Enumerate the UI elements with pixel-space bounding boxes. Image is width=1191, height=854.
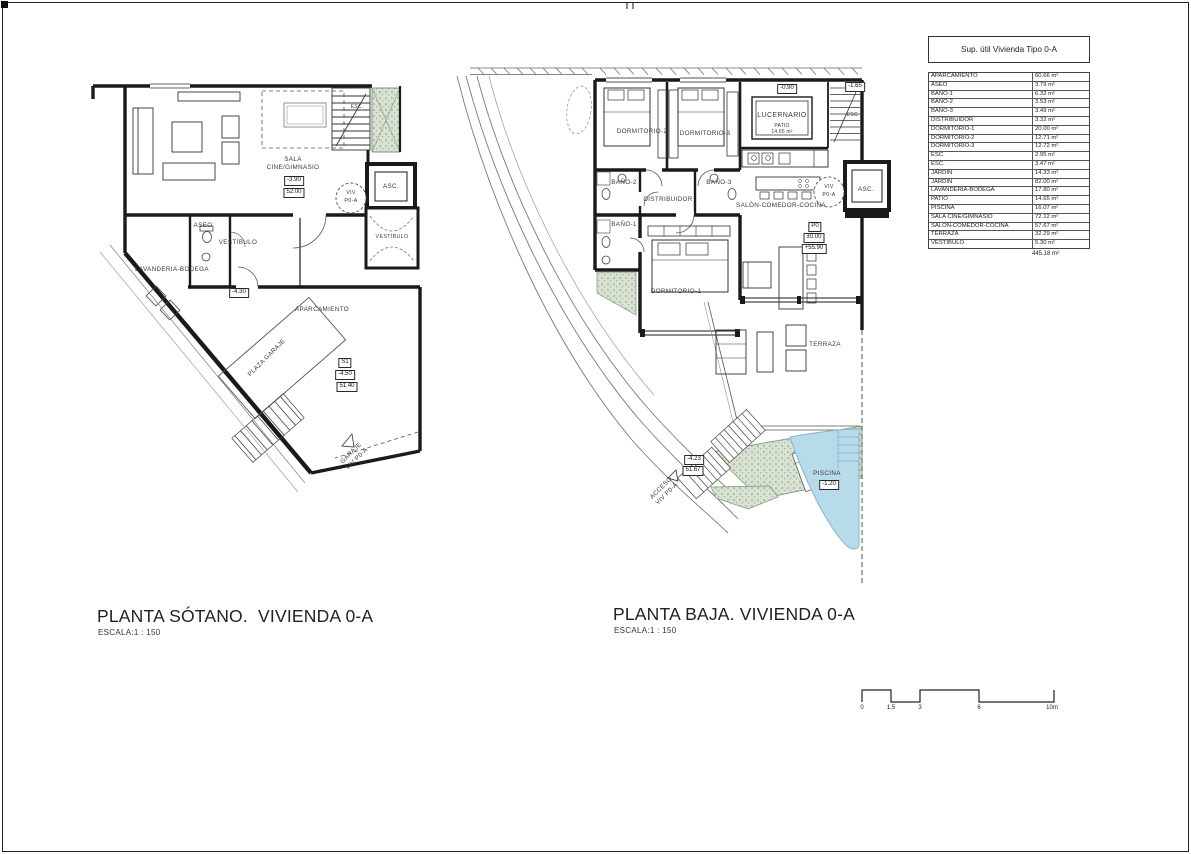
room-label-sala-2: CINE/GIMNASIO [267, 164, 320, 171]
table-row: DORMITORIO-212.71 m² [929, 135, 1089, 144]
level-tag-esc: -1.65 [845, 82, 865, 92]
scale-tick-10m: 10m [1046, 705, 1058, 711]
table-row: LAVANDERIA-BODEGA17.80 m² [929, 187, 1089, 196]
elevation-tag-p0: +55.90 [802, 244, 827, 254]
table-row: JARDÍN82.00 m² [929, 179, 1089, 188]
scale-bar [862, 690, 1054, 702]
level-tag-piscina: -1.20 [819, 480, 839, 490]
room-label-piscina: PISCINA [813, 470, 841, 477]
room-label-lucernario: LUCERNARIO [757, 112, 806, 119]
plan-title-sotano: PLANTA SÓTANO. VIVIENDA 0-A [97, 606, 373, 627]
room-label-vestibulo-right: VESTÍBULO [376, 234, 409, 241]
plan-baja-drawing [457, 68, 889, 583]
unit-tag-viv-baja-2: P0-A [822, 192, 835, 199]
room-label-esc: ESC. [351, 104, 363, 111]
plan-scale-baja: ESCALA:1 : 150 [614, 626, 676, 635]
level-tag-sala: -3.90 [284, 176, 304, 186]
table-row: BAÑO-33.49 m² [929, 108, 1089, 117]
level-tag-patio: -0.90 [777, 84, 797, 94]
area-table-total: 445.18 m² [1032, 251, 1090, 257]
room-label-vestibulo: VESTÍBULO [219, 239, 258, 246]
level-tag-ramp: -4.30 [229, 288, 249, 298]
table-row: BAÑO-23.53 m² [929, 99, 1089, 108]
table-row: ASEO3.79 m² [929, 82, 1089, 91]
table-row: VESTÍBULO5.30 m² [929, 240, 1089, 248]
plan-scale-sotano: ESCALA:1 : 150 [98, 628, 160, 637]
level-tag-s1: -4.50 [335, 370, 355, 380]
room-label-distribuidor: DISTRIBUIDOR [643, 196, 692, 203]
table-row: PISCINA16.07 m² [929, 205, 1089, 214]
room-label-asc-baja: ASC. [858, 186, 874, 193]
table-row: APARCAMIENTO60.66 m² [929, 73, 1089, 82]
scale-tick-6: 6 [977, 705, 980, 711]
table-row: DORMITORIO-312.72 m² [929, 143, 1089, 152]
room-label-dormitorio3: DORMITORIO-3 [680, 130, 731, 137]
plan-sotano-drawing [93, 83, 420, 493]
sheet-marks [1, 1, 633, 9]
room-label-sala: SALA [284, 156, 302, 163]
floor-tag-p0: P0 [808, 222, 821, 232]
unit-tag-viv-2: P0-A [344, 198, 357, 205]
room-label-aseo: ASEO [194, 222, 213, 229]
room-label-bano2: BAÑO-2 [611, 179, 637, 186]
elevation-tag-sala: 52.00 [283, 188, 304, 198]
table-row: JARDÍN14.33 m² [929, 170, 1089, 179]
scale-tick-0: 0 [860, 705, 863, 711]
room-label-asc: ASC. [383, 183, 399, 190]
area-table-title: Sup. útil Vivienda Tipo 0-A [928, 36, 1090, 63]
room-label-bano1: BAÑO-1 [611, 221, 637, 228]
room-label-terraza: TERRAZA [809, 341, 841, 348]
room-label-lavanderia: LAVANDERIA-BODEGA [135, 266, 209, 273]
table-row: PATIO14.65 m² [929, 196, 1089, 205]
elevation-tag-s1: 51.40 [336, 382, 357, 392]
table-row: BAÑO-16.32 m² [929, 91, 1089, 100]
unit-tag-viv: VIV [346, 190, 356, 197]
room-label-aparcamiento: APARCAMIENTO [295, 306, 349, 313]
scale-tick-3: 3 [918, 705, 921, 711]
room-label-bano3: BAÑO-3 [706, 179, 732, 186]
space-tag-s1: S1 [338, 358, 351, 368]
level-tag-p0: ±0.00 [804, 233, 825, 243]
room-label-dormitorio2: DORMITORIO-2 [617, 128, 668, 135]
room-label-salon: SALÓN-COMEDOR-COCINA [736, 202, 826, 209]
level-tag-stair: -4.23 [684, 455, 704, 465]
area-table: Sup. útil Vivienda Tipo 0-A APARCAMIENTO… [928, 36, 1090, 257]
room-label-dormitorio1: DORMITORIO-1 [651, 288, 702, 295]
table-row: TERRAZA32.29 m² [929, 231, 1089, 240]
room-label-esc-baja: ESC. [847, 112, 859, 119]
plan-title-baja: PLANTA BAJA. VIVIENDA 0-A [613, 604, 855, 625]
sala-furniture [133, 92, 240, 180]
unit-tag-viv-baja: VIV [824, 184, 834, 191]
terraza-furniture [716, 325, 806, 374]
elevation-tag-stair: 51.67 [682, 466, 703, 476]
table-row: SALÓN-COMEDOR-COCINA57.67 m² [929, 223, 1089, 232]
table-row: ESC.2.95 m² [929, 152, 1089, 161]
table-row: DISTRIBUIDOR3.32 m² [929, 117, 1089, 126]
drawing-sheet: SALA CINE/GIMNASIO -3.90 52.00 ESC. VIV … [0, 0, 1191, 854]
area-tag-patio: 14.65 m² [771, 129, 792, 136]
table-row: DORMITORIO-120.00 m² [929, 126, 1089, 135]
table-row: ESC.3.47 m² [929, 161, 1089, 170]
scale-tick-1-5: 1.5 [887, 705, 895, 711]
table-row: SALA CINE/GIMNASIO72.12 m² [929, 214, 1089, 223]
area-table-grid: APARCAMIENTO60.66 m² ASEO3.79 m² BAÑO-16… [928, 72, 1090, 249]
